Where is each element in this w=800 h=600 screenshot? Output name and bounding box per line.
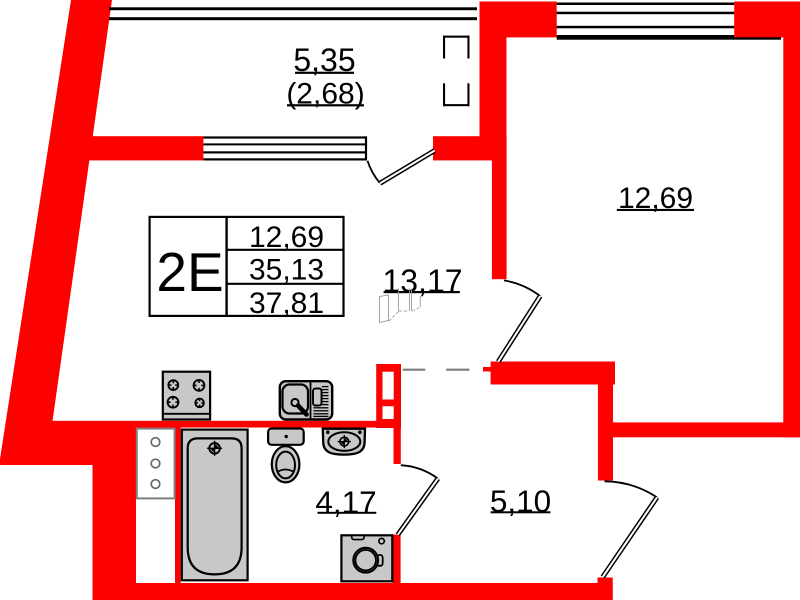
svg-text:37,81: 37,81 [249, 287, 324, 320]
svg-text:4,17: 4,17 [315, 484, 376, 520]
svg-text:2E: 2E [156, 241, 223, 303]
svg-text:35,13: 35,13 [249, 254, 324, 287]
svg-text:5,10: 5,10 [490, 483, 551, 519]
svg-text:12,69: 12,69 [249, 221, 324, 254]
svg-text:13,17: 13,17 [382, 263, 462, 299]
